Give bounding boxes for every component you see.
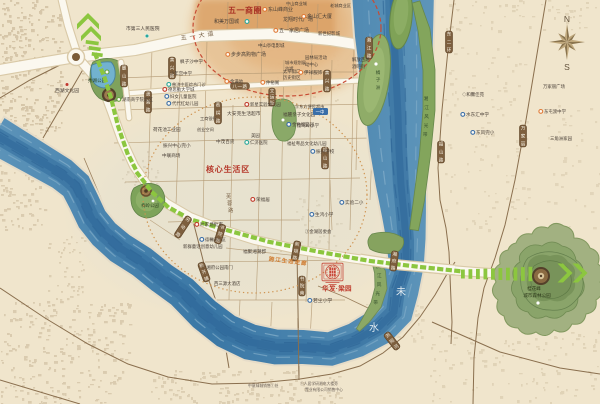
svg-text:山: 山	[122, 73, 127, 80]
svg-text:市第三人民医院: 市第三人民医院	[126, 25, 160, 32]
svg-text:二: 二	[447, 40, 452, 45]
svg-text:洲: 洲	[376, 85, 381, 90]
svg-text:叶家塘批市: 叶家塘批市	[200, 221, 223, 228]
svg-text:城市规划展: 城市规划展	[285, 59, 307, 66]
svg-text:少年宫中学: 少年宫中学	[170, 70, 193, 77]
svg-text:路: 路	[122, 81, 127, 88]
svg-text:德馨园小区: 德馨园小区	[205, 236, 226, 243]
svg-text:美园: 美园	[251, 132, 260, 139]
svg-text:光: 光	[424, 122, 429, 129]
svg-text:路: 路	[146, 107, 151, 114]
svg-text:福祉粤品文化幼儿园: 福祉粤品文化幼儿园	[287, 140, 327, 147]
svg-text:湖南商学院北区: 湖南商学院北区	[122, 96, 153, 103]
svg-text:路: 路	[228, 207, 233, 214]
svg-text:子: 子	[376, 77, 381, 83]
svg-text:南: 南	[300, 290, 305, 296]
svg-text:东风完小: 东风完小	[476, 129, 495, 136]
svg-text:大安克生活超市: 大安克生活超市	[227, 110, 261, 117]
svg-text:西三源大酒店: 西三源大酒店	[214, 280, 241, 287]
svg-text:①人居学研湘电大楼旁: ①人居学研湘电大楼旁	[300, 381, 338, 386]
svg-text:生鸿小学: 生鸿小学	[315, 211, 334, 218]
svg-text:代代红幼儿园: 代代红幼儿园	[172, 100, 199, 107]
svg-text:运: 运	[270, 94, 275, 101]
svg-text:金山汇大厦: 金山汇大厦	[307, 13, 332, 20]
svg-text:福麓亲子文化园: 福麓亲子文化园	[283, 111, 316, 118]
svg-text:新星实验幼儿园: 新星实验幼儿园	[250, 101, 281, 108]
svg-text:中山亭电影城: 中山亭电影城	[258, 42, 285, 49]
svg-text:S: S	[564, 62, 570, 72]
svg-text:书: 书	[300, 276, 305, 283]
svg-text:文: 文	[270, 88, 275, 95]
svg-text:福聚湘潮郡: 福聚湘潮郡	[243, 248, 266, 255]
svg-text:江: 江	[424, 104, 429, 111]
svg-text:华发·梁园: 华发·梁园	[322, 284, 352, 293]
svg-text:若尘小学: 若尘小学	[313, 297, 332, 304]
svg-text:水东汇中学: 水东汇中学	[466, 111, 489, 118]
svg-text:创业空间: 创业空间	[197, 126, 214, 133]
svg-text:兴: 兴	[325, 78, 330, 85]
svg-text:新群童话创意幼儿园: 新群童话创意幼儿园	[183, 243, 223, 250]
svg-text:三角洲家园: 三角洲家园	[550, 135, 573, 142]
svg-text:振兴学校: 振兴学校	[316, 148, 335, 155]
svg-text:中茂百货: 中茂百货	[216, 138, 235, 145]
svg-text:和美万国城: 和美万国城	[214, 18, 239, 25]
svg-text:东山峰商业: 东山峰商业	[268, 6, 293, 13]
svg-text:酒吧街: 酒吧街	[352, 63, 366, 70]
svg-text:桂花峰: 桂花峰	[527, 285, 541, 292]
svg-text:湘: 湘	[367, 37, 372, 44]
svg-text:中联商场: 中联商场	[162, 152, 181, 159]
svg-text:湘: 湘	[424, 95, 429, 102]
svg-text:园林局活动: 园林局活动	[305, 54, 328, 61]
svg-text:伊祥服饰: 伊祥服饰	[304, 69, 323, 76]
svg-text:蓉: 蓉	[227, 200, 232, 207]
svg-text:◇和馨佳苑: ◇和馨佳苑	[462, 91, 485, 98]
svg-text:路: 路	[325, 86, 330, 93]
svg-text:院: 院	[300, 283, 305, 290]
svg-text:水: 水	[369, 322, 379, 334]
svg-text:金满地: 金满地	[230, 78, 244, 85]
svg-text:五一商圈: 五一商圈	[228, 5, 262, 15]
svg-text:◎湘府公园南门: ◎湘府公园南门	[202, 264, 233, 271]
svg-text:金色摇篮园: 金色摇篮园	[292, 121, 315, 128]
svg-text:仁济医院: 仁济医院	[250, 139, 268, 146]
svg-text:山: 山	[439, 149, 444, 156]
svg-text:新世纪影城: 新世纪影城	[318, 30, 341, 37]
svg-text:妇女儿童医院: 妇女儿童医院	[170, 93, 197, 100]
svg-text:光: 光	[375, 290, 380, 297]
svg-text:中山商业城: 中山商业城	[286, 0, 308, 7]
svg-text:江: 江	[377, 272, 382, 279]
svg-text:工商银行: 工商银行	[200, 115, 217, 122]
svg-text:蔡: 蔡	[216, 102, 221, 108]
svg-text:城市森林公园: 城市森林公园	[523, 292, 551, 299]
svg-text:芙: 芙	[226, 193, 231, 200]
svg-text:置业有限公司销售中心: 置业有限公司销售中心	[305, 387, 343, 392]
svg-text:西湖文化园: 西湖文化园	[55, 87, 79, 94]
svg-text:荷花池工业园: 荷花池工业园	[153, 126, 181, 133]
svg-text:动中心: 动中心	[305, 61, 319, 68]
svg-text:万家丽广场: 万家丽广场	[543, 83, 566, 90]
svg-text:老城商业区: 老城商业区	[330, 2, 351, 9]
svg-text:慈济中医综合门诊: 慈济中医综合门诊	[172, 81, 206, 88]
svg-text:东: 东	[447, 31, 452, 37]
svg-text:麓: 麓	[122, 65, 127, 72]
svg-text:黄: 黄	[325, 70, 330, 77]
svg-text:德思勤大学城: 德思勤大学城	[168, 86, 195, 93]
svg-text:路: 路	[323, 163, 328, 170]
svg-text:枫子沙中学: 枫子沙中学	[180, 58, 203, 65]
svg-text:步步高购物广场: 步步高购物广场	[231, 51, 266, 58]
svg-text:荣福居: 荣福居	[256, 196, 270, 203]
svg-text:东屯渡中学: 东屯渡中学	[544, 108, 567, 115]
svg-text:江: 江	[367, 45, 372, 52]
svg-text:核心生活区: 核心生活区	[206, 164, 250, 174]
svg-text:黄: 黄	[170, 57, 175, 64]
svg-text:①金湖居委会: ①金湖居委会	[305, 228, 332, 235]
svg-text:路: 路	[439, 157, 444, 164]
svg-text:五一家居广场: 五一家居广场	[279, 27, 309, 34]
svg-text:N: N	[564, 14, 570, 24]
svg-text:家: 家	[521, 133, 526, 139]
svg-text:未: 未	[396, 286, 406, 298]
svg-text:实验二小: 实验二小	[345, 199, 364, 206]
svg-text:振兴中心完小: 振兴中心完小	[163, 142, 191, 149]
svg-text:一中: 一中	[316, 109, 325, 116]
svg-text:韶: 韶	[439, 141, 444, 148]
svg-text:太平街口: 太平街口	[283, 68, 301, 75]
svg-text:仲裕阁: 仲裕阁	[266, 79, 279, 86]
svg-text:中意绿城销售①处: 中意绿城销售①处	[248, 383, 279, 388]
svg-text:橘: 橘	[376, 69, 381, 75]
svg-text:山: 山	[323, 155, 328, 162]
svg-text:解放西路: 解放西路	[352, 56, 370, 63]
svg-text:历史街区: 历史街区	[283, 74, 301, 81]
